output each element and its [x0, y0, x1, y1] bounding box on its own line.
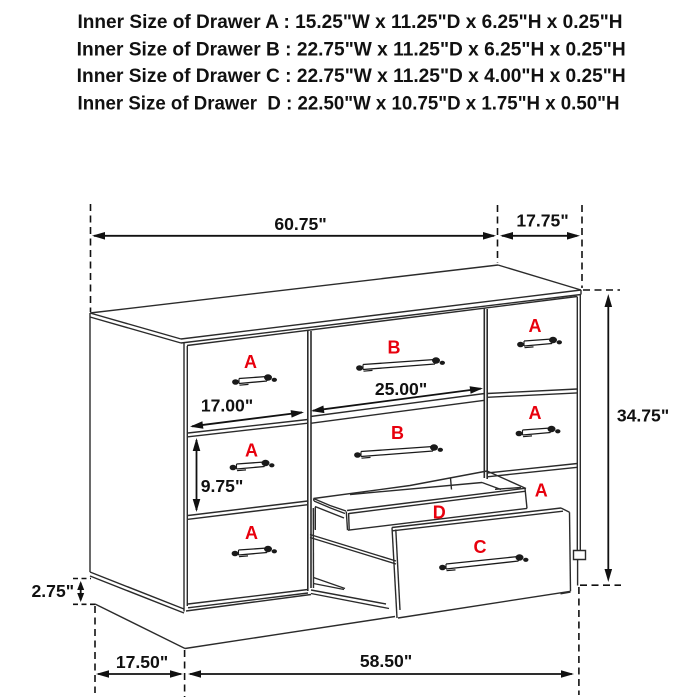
- svg-text:34.75": 34.75": [617, 406, 669, 426]
- svg-text:Inner Size of Drawer A : 15.25: Inner Size of Drawer A : 15.25"W x 11.25…: [78, 12, 623, 33]
- svg-text:2.75": 2.75": [32, 581, 75, 601]
- svg-text:60.75": 60.75": [274, 214, 326, 234]
- svg-text:17.50": 17.50": [116, 652, 168, 672]
- svg-text:B: B: [391, 423, 404, 443]
- svg-text:A: A: [535, 480, 548, 500]
- svg-text:Inner Size of Drawer C : 22.75: Inner Size of Drawer C : 22.75"W x 11.25…: [77, 66, 626, 87]
- svg-text:17.75": 17.75": [516, 211, 568, 231]
- svg-text:A: A: [529, 316, 542, 336]
- svg-text:58.50": 58.50": [360, 651, 412, 671]
- svg-text:D: D: [433, 503, 446, 523]
- svg-text:Inner Size of Drawer B : 22.75: Inner Size of Drawer B : 22.75"W x 11.25…: [77, 39, 626, 60]
- svg-text:A: A: [529, 403, 542, 423]
- svg-text:C: C: [474, 537, 487, 557]
- svg-text:A: A: [245, 523, 258, 543]
- svg-text:Inner Size of Drawer D : 22.5: Inner Size of Drawer D : 22.50"W x 10.75…: [78, 93, 620, 114]
- svg-text:A: A: [245, 440, 258, 460]
- svg-text:17.00": 17.00": [201, 396, 253, 416]
- svg-text:B: B: [388, 338, 401, 358]
- svg-text:9.75": 9.75": [201, 476, 244, 496]
- svg-text:A: A: [244, 352, 257, 372]
- svg-text:25.00": 25.00": [375, 379, 427, 399]
